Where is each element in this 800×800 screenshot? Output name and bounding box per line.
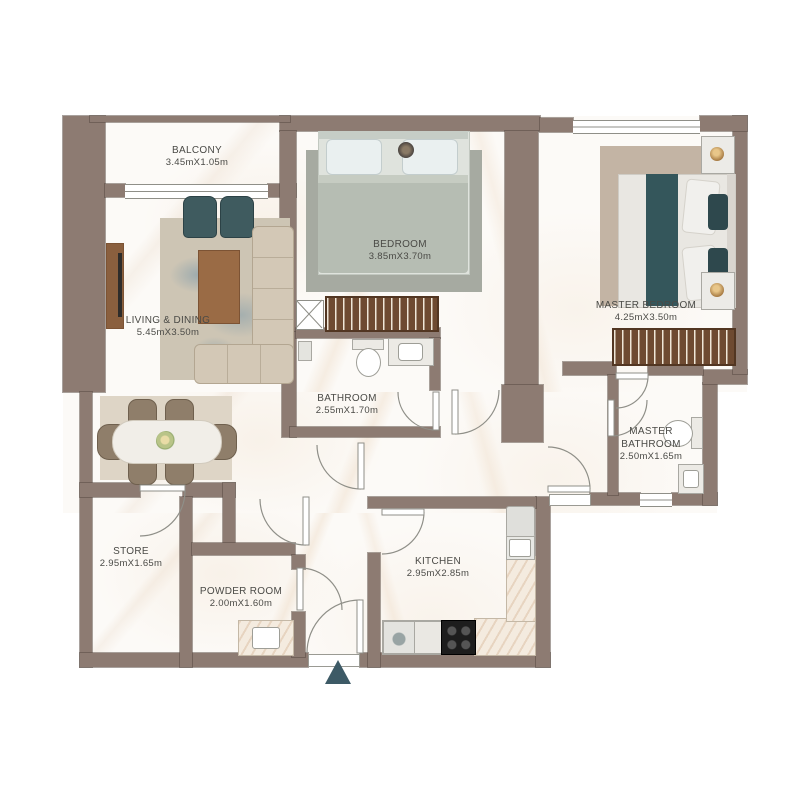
shower-head (298, 341, 312, 361)
service-door-threshold (549, 494, 591, 506)
bedroom-wardrobe (325, 296, 439, 332)
kitchen-counter-corner (474, 618, 536, 656)
bathroom-basin (398, 343, 423, 361)
wall-left-column (63, 116, 105, 392)
wall-balcony-parapet (90, 116, 290, 122)
room-label-master-bedroom: MASTER BEDROOM 4.25mX3.50m (596, 299, 696, 324)
wall-hall-kitchen (368, 553, 380, 667)
wall-bathroom-bottom (290, 427, 440, 437)
kitchen-counter-right (506, 556, 536, 622)
wall-top-master-west (540, 118, 573, 132)
room-label-bedroom: BEDROOM 3.85mX3.70m (369, 238, 431, 263)
wall-master-bedroom-bottom-west (563, 362, 616, 375)
kitchen-basin (509, 539, 531, 557)
wall-top-master-east (700, 116, 747, 131)
room-label-kitchen: KITCHEN 2.95mX2.85m (407, 555, 469, 580)
room-label-store: STORE 2.95mX1.65m (100, 545, 162, 570)
master-bedroom-window (573, 120, 700, 134)
table-lamp-1 (710, 147, 724, 161)
wall-store-right (180, 497, 192, 667)
fridge (506, 506, 535, 538)
master-cushion-1 (708, 194, 728, 230)
stove (441, 620, 476, 655)
room-label-powder-room: POWDER ROOM 2.00mX1.60m (200, 585, 282, 610)
table-flowers (156, 431, 176, 451)
wall-balcony-stub-left (105, 184, 125, 197)
powder-basin (252, 627, 280, 649)
wall-kitchen-right (536, 497, 550, 667)
washing-machine (383, 621, 415, 654)
room-label-living-dining: LIVING & DINING 5.45mX3.50m (126, 314, 211, 339)
room-label-balcony: BALCONY 3.45mX1.05m (166, 144, 228, 169)
tv-screen (118, 253, 122, 317)
entrance-threshold (308, 654, 360, 667)
wall-top-main (280, 116, 540, 131)
armchair-2 (220, 196, 254, 238)
wall-bedroom-master (505, 131, 538, 392)
sofa-seat (194, 344, 294, 384)
master-wardrobe (612, 328, 736, 366)
armchair-1 (183, 196, 217, 238)
wall-corridor-block (502, 385, 543, 442)
bedroom-headboard (318, 131, 468, 139)
room-label-bathroom: BATHROOM 2.55mX1.70m (316, 392, 378, 417)
wall-master-bath-right (703, 383, 717, 505)
wall-left-lower (80, 392, 92, 667)
floor-plan-page: BALCONY 3.45mX1.05m LIVING & DINING 5.45… (0, 0, 800, 800)
wall-dining-bottom-west (80, 483, 140, 497)
bathroom-toilet-bowl (356, 348, 381, 377)
master-bed-runner (646, 174, 678, 306)
room-label-master-bathroom: MASTER BATHROOM 2.50mX1.65m (610, 425, 692, 463)
wall-powder-top (192, 543, 295, 555)
service-shaft (296, 300, 324, 330)
coffee-table (198, 250, 240, 324)
table-lamp-2 (710, 283, 724, 297)
wall-powder-right-upper (292, 555, 305, 569)
bedroom-pillow-1 (326, 139, 382, 175)
wall-hall-stub (223, 483, 235, 545)
master-bath-basin (683, 470, 699, 488)
bedroom-ceiling-light (398, 142, 414, 158)
dishwasher (414, 621, 442, 654)
master-bathroom-window (640, 493, 672, 507)
